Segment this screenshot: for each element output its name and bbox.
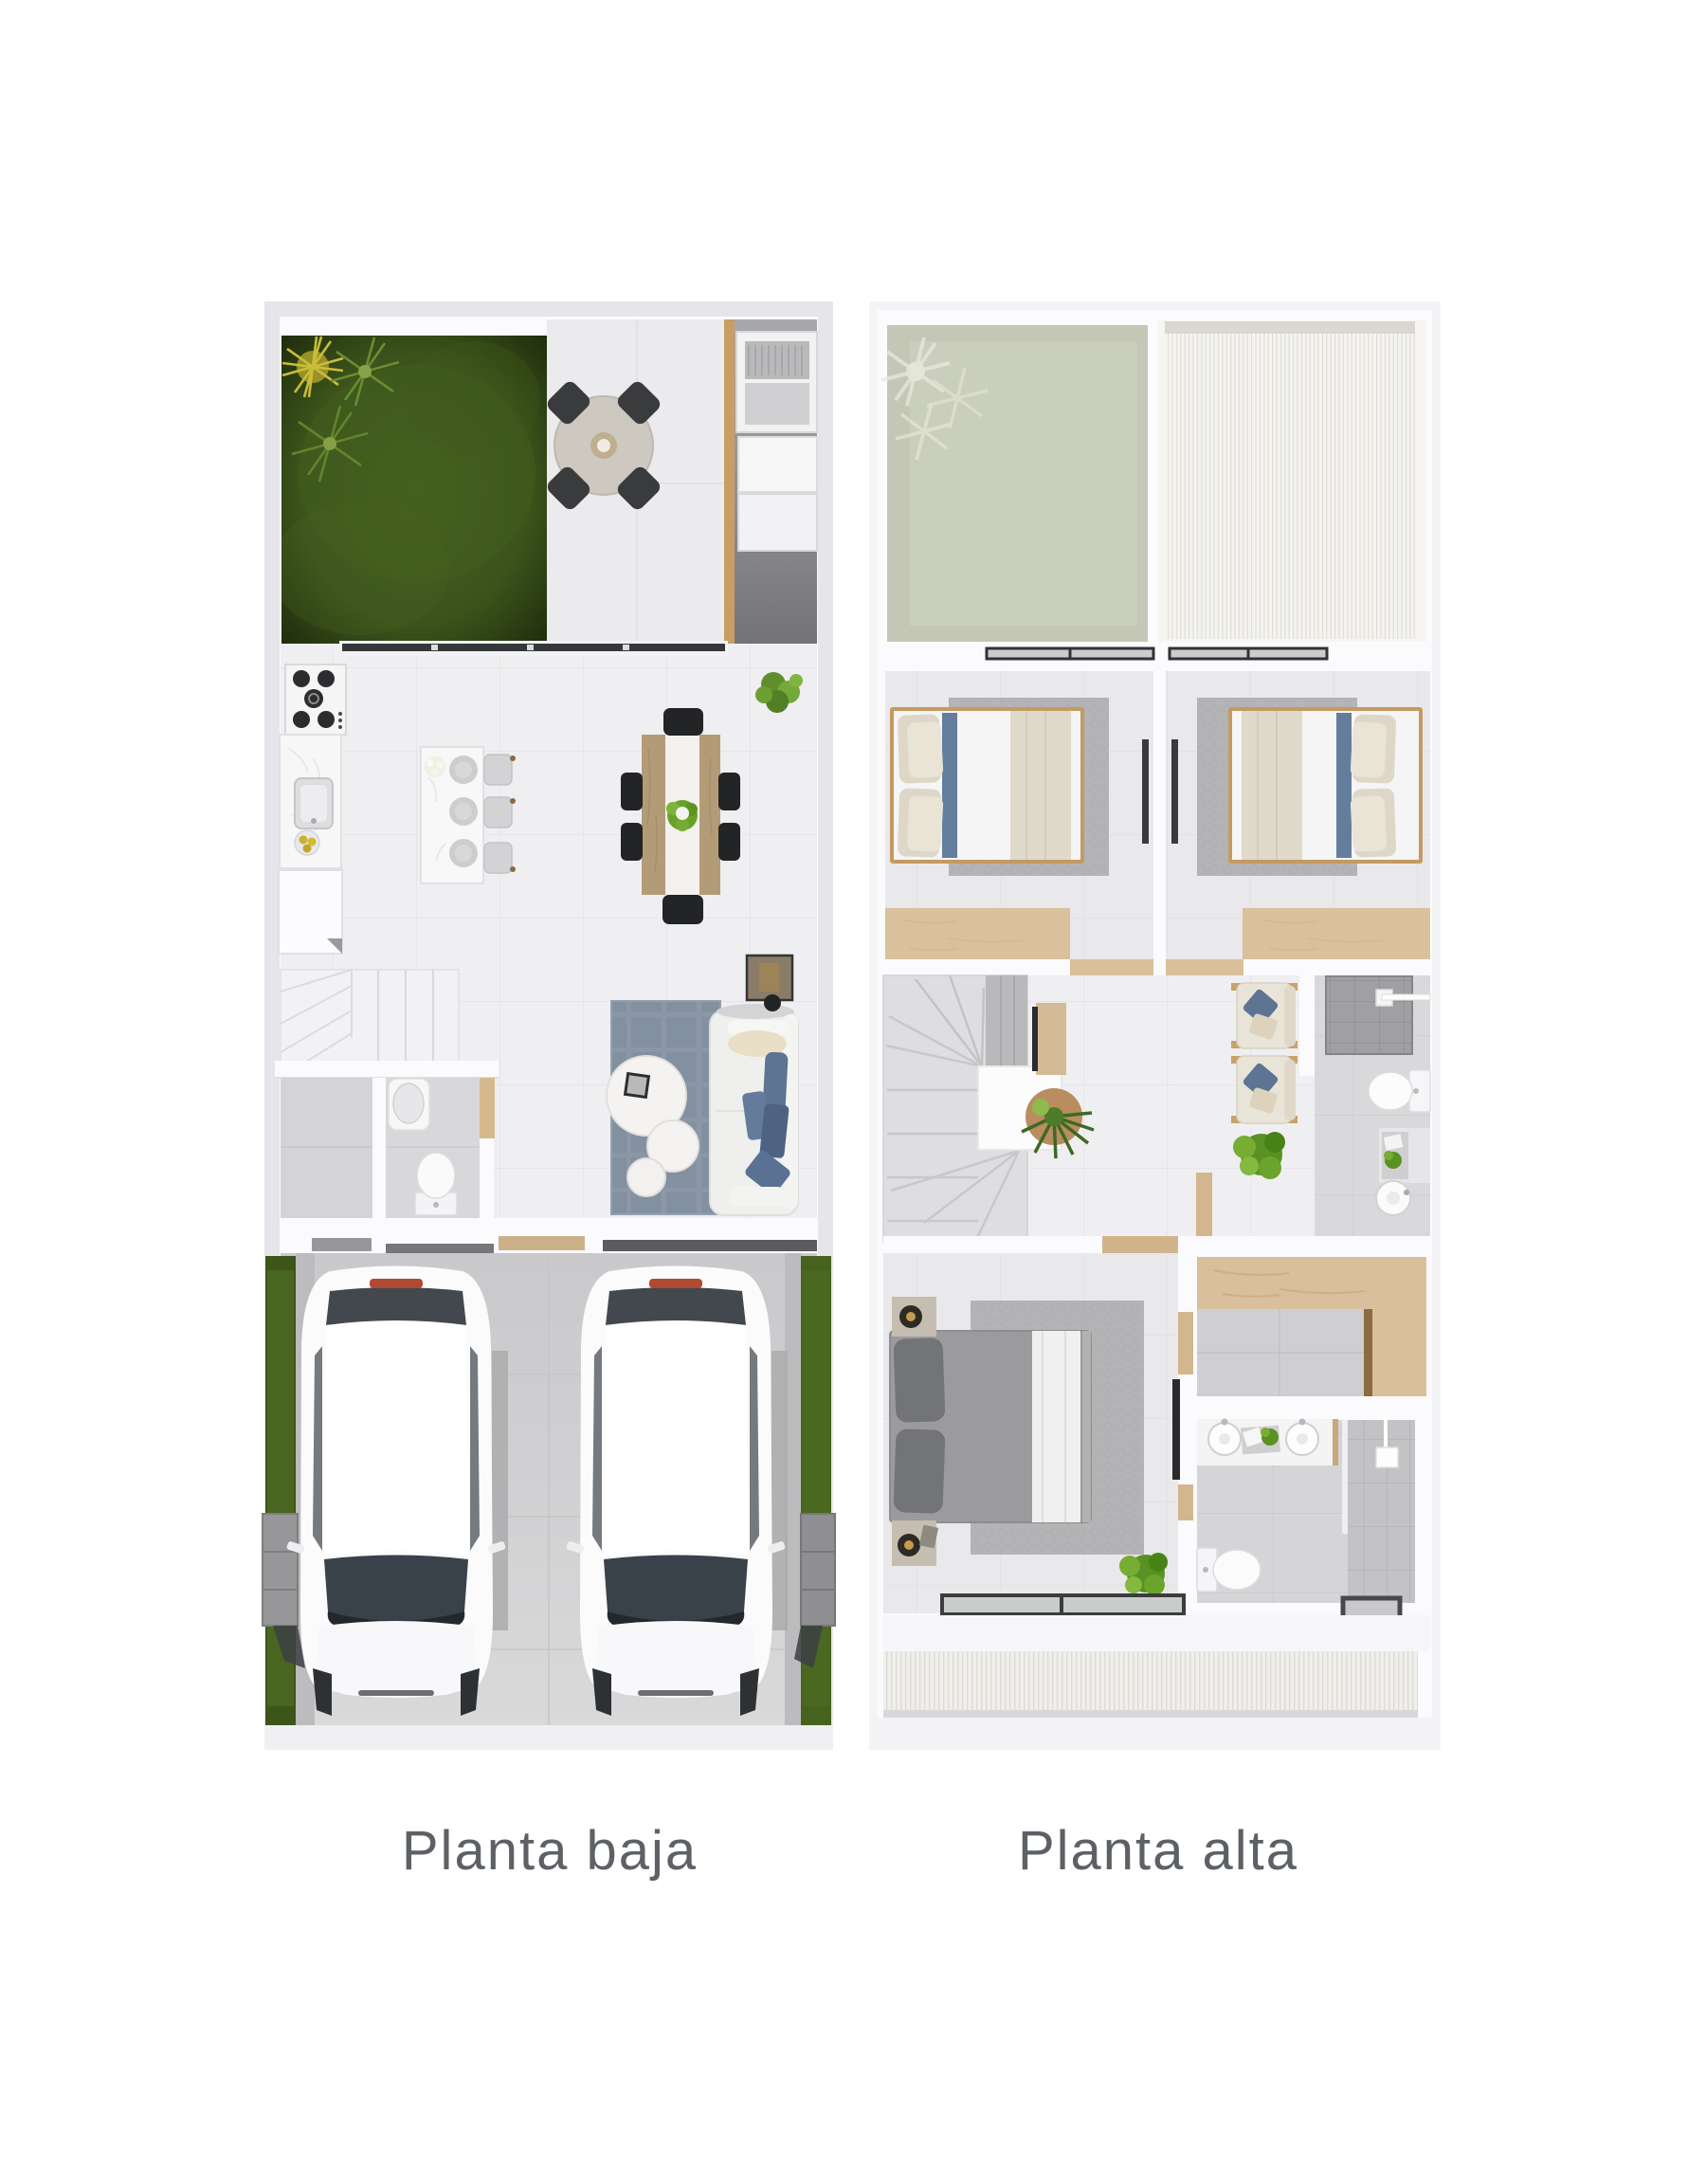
svg-text:Planta alta: Planta alta — [1018, 1820, 1298, 1882]
svg-text:Planta baja: Planta baja — [402, 1820, 698, 1882]
